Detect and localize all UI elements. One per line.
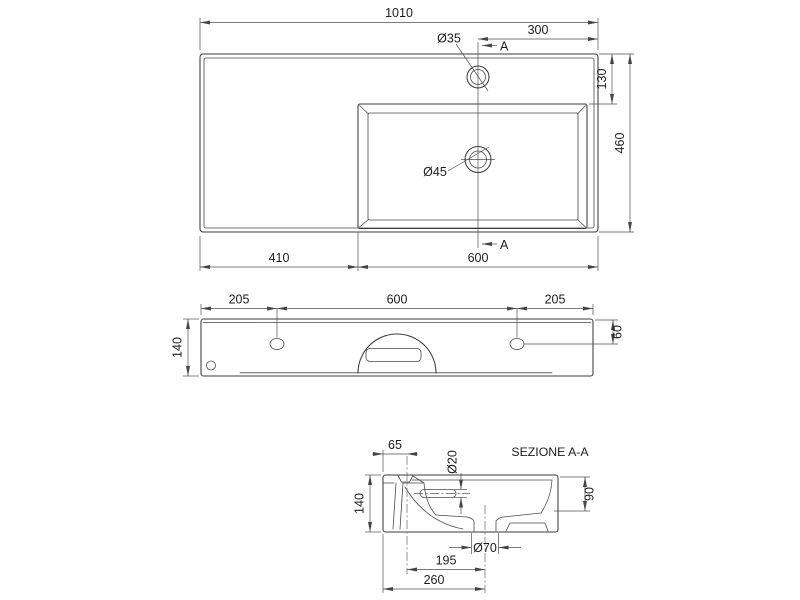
section-foot bbox=[506, 523, 548, 531]
sink-outer-outline bbox=[200, 54, 598, 232]
section-letter-top: A bbox=[500, 40, 509, 54]
drain-hole bbox=[448, 147, 495, 173]
section-title: SEZIONE A-A bbox=[511, 445, 589, 459]
dim-tap-offset: 300 bbox=[528, 23, 549, 37]
dim-hole-offset-left: 205 bbox=[229, 293, 250, 307]
front-outline bbox=[201, 319, 593, 376]
sink-rim-inner-line bbox=[204, 58, 594, 228]
dim-basin-width: 600 bbox=[468, 251, 489, 265]
front-view: 205 600 205 140 60 bbox=[171, 293, 625, 377]
label-drain-dia: Ø45 bbox=[423, 165, 447, 179]
tap-hole bbox=[456, 44, 489, 91]
overflow-slot-front bbox=[366, 349, 421, 362]
washbasin-dimension-drawing: 1010 300 Ø35 A 130 460 Ø45 410 600 A bbox=[0, 0, 800, 600]
dim-tap-center-offset: 65 bbox=[388, 438, 402, 452]
siphon-arch bbox=[358, 334, 436, 373]
mounting-hole-right bbox=[510, 339, 524, 350]
dim-drain-offset: 195 bbox=[436, 554, 457, 568]
dim-hole-drop: 60 bbox=[611, 325, 625, 339]
dim-drain-outlet-dia: Ø70 bbox=[473, 541, 497, 555]
section-letter-bottom: A bbox=[500, 238, 509, 252]
section-inner-profile bbox=[384, 476, 552, 532]
dim-overflow-dia: Ø20 bbox=[446, 450, 460, 474]
dim-overall-height-section: 140 bbox=[353, 493, 367, 514]
section-dimensions: 140 65 Ø20 90 Ø70 195 260 bbox=[353, 438, 597, 593]
dim-basin-depth: 90 bbox=[583, 487, 597, 501]
dim-overall-depth: 460 bbox=[613, 133, 627, 154]
section-view: SEZIONE A-A 140 bbox=[353, 438, 597, 593]
top-view: 1010 300 Ø35 A 130 460 Ø45 410 600 A bbox=[200, 6, 634, 271]
dim-overall-width: 1010 bbox=[385, 6, 413, 20]
dim-hole-offset-right: 205 bbox=[545, 293, 566, 307]
fixing-hole-left bbox=[207, 361, 216, 370]
dim-overall-height-front: 140 bbox=[171, 337, 185, 358]
section-outer-outline bbox=[383, 475, 558, 532]
dim-back-ledge-depth: 130 bbox=[595, 69, 609, 90]
dim-drain-offset-total: 260 bbox=[424, 573, 445, 587]
top-view-dimensions: 1010 300 Ø35 A 130 460 Ø45 410 600 A bbox=[200, 6, 634, 271]
dim-ledge-width: 410 bbox=[269, 251, 290, 265]
technical-drawing-canvas: 1010 300 Ø35 A 130 460 Ø45 410 600 A bbox=[0, 0, 800, 600]
dim-hole-spacing: 600 bbox=[387, 293, 408, 307]
mounting-hole-left bbox=[270, 339, 284, 350]
label-tap-hole-dia: Ø35 bbox=[437, 32, 461, 46]
